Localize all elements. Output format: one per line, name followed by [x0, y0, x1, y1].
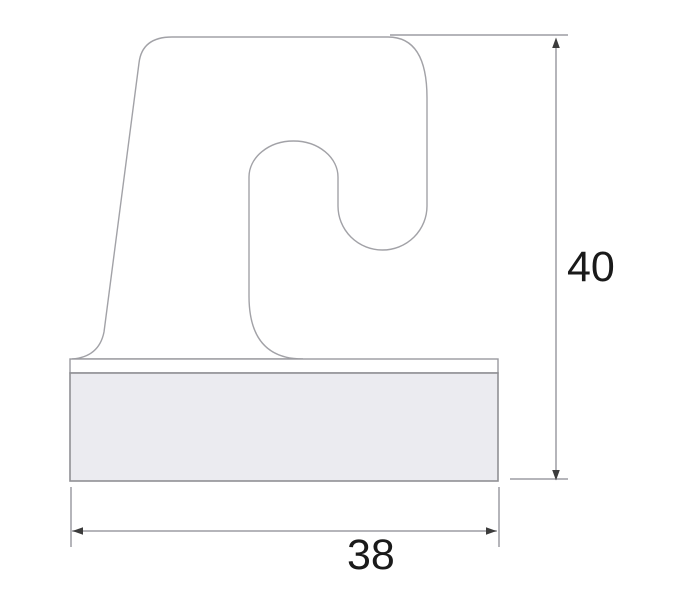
flange-strip	[70, 359, 498, 373]
drawing-canvas: 40 38	[0, 0, 700, 600]
arrowhead-right-icon	[486, 527, 497, 535]
width-dimension-label: 38	[347, 534, 395, 577]
height-dimension-label: 40	[567, 246, 615, 289]
technical-drawing	[0, 0, 700, 600]
hook-profile-outline	[72, 37, 427, 359]
arrowhead-up-icon	[552, 38, 560, 49]
arrowhead-left-icon	[73, 527, 84, 535]
base-block	[70, 373, 498, 481]
